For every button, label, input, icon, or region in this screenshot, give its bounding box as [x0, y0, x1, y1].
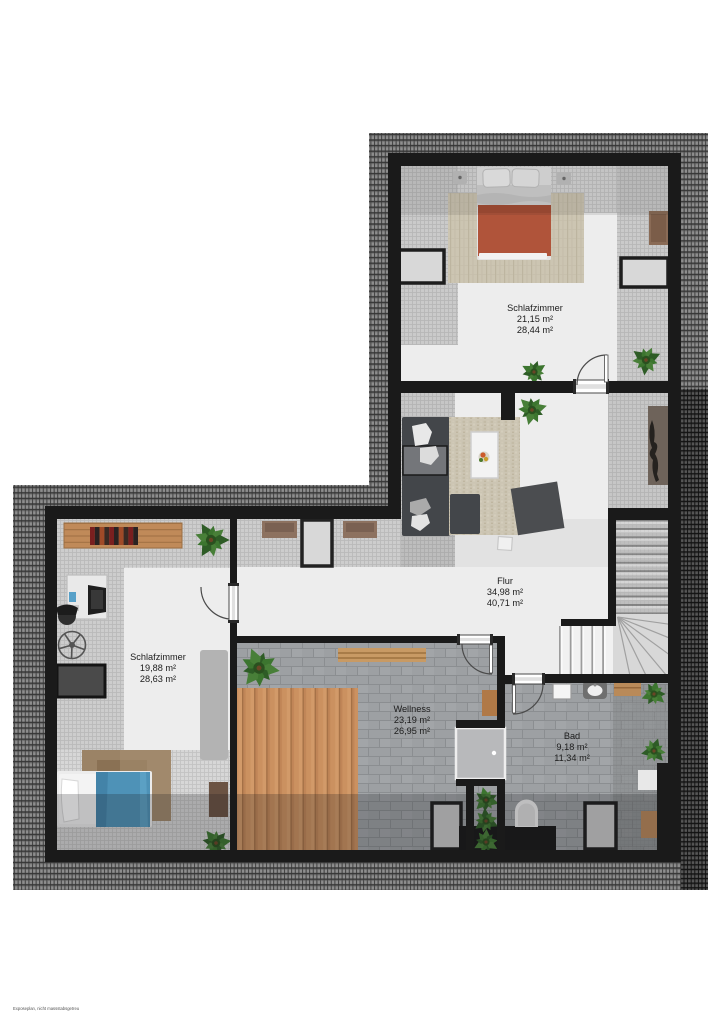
svg-text:Wellness: Wellness	[393, 704, 431, 714]
svg-text:21,15 m²: 21,15 m²	[517, 314, 553, 324]
svg-text:Flur: Flur	[497, 576, 513, 586]
svg-text:34,98 m²: 34,98 m²	[487, 587, 523, 597]
svg-text:11,34 m²: 11,34 m²	[554, 753, 590, 763]
svg-text:Schlafzimmer: Schlafzimmer	[507, 303, 563, 313]
svg-text:28,44 m²: 28,44 m²	[517, 325, 553, 335]
svg-text:23,19 m²: 23,19 m²	[394, 715, 430, 725]
svg-text:9,18 m²: 9,18 m²	[556, 742, 587, 752]
svg-text:Schlafzimmer: Schlafzimmer	[130, 652, 186, 662]
svg-text:40,71 m²: 40,71 m²	[487, 598, 523, 608]
svg-text:26,95 m²: 26,95 m²	[394, 726, 430, 736]
svg-text:28,63 m²: 28,63 m²	[140, 674, 176, 684]
svg-text:19,88 m²: 19,88 m²	[140, 663, 176, 673]
svg-text:Exposeplan, nicht massstabsget: Exposeplan, nicht massstabsgetreu	[13, 1006, 80, 1011]
svg-text:Bad: Bad	[564, 731, 580, 741]
